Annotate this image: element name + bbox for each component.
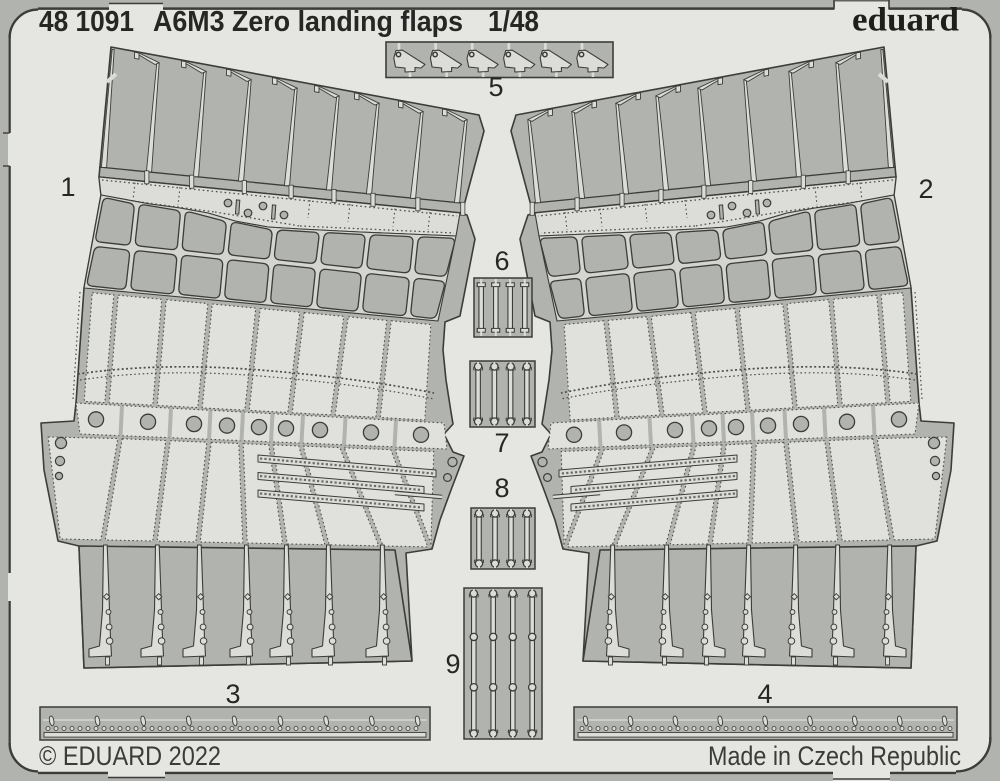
svg-text:4: 4 [757,679,772,709]
svg-text:5: 5 [488,72,503,102]
svg-text:6: 6 [494,246,509,276]
svg-text:9: 9 [445,649,460,679]
svg-text:1: 1 [60,172,75,202]
svg-text:3: 3 [225,679,240,709]
svg-text:© EDUARD 2022: © EDUARD 2022 [39,741,221,771]
svg-text:7: 7 [494,428,509,458]
svg-text:eduard: eduard [852,2,959,39]
svg-text:2: 2 [918,174,933,204]
svg-text:8: 8 [494,473,509,503]
svg-text:48 1091: 48 1091 [39,6,134,38]
svg-text:1/48: 1/48 [488,6,539,38]
svg-text:Made in Czech Republic: Made in Czech Republic [708,741,961,771]
svg-text:A6M3 Zero landing flaps: A6M3 Zero landing flaps [153,6,463,38]
